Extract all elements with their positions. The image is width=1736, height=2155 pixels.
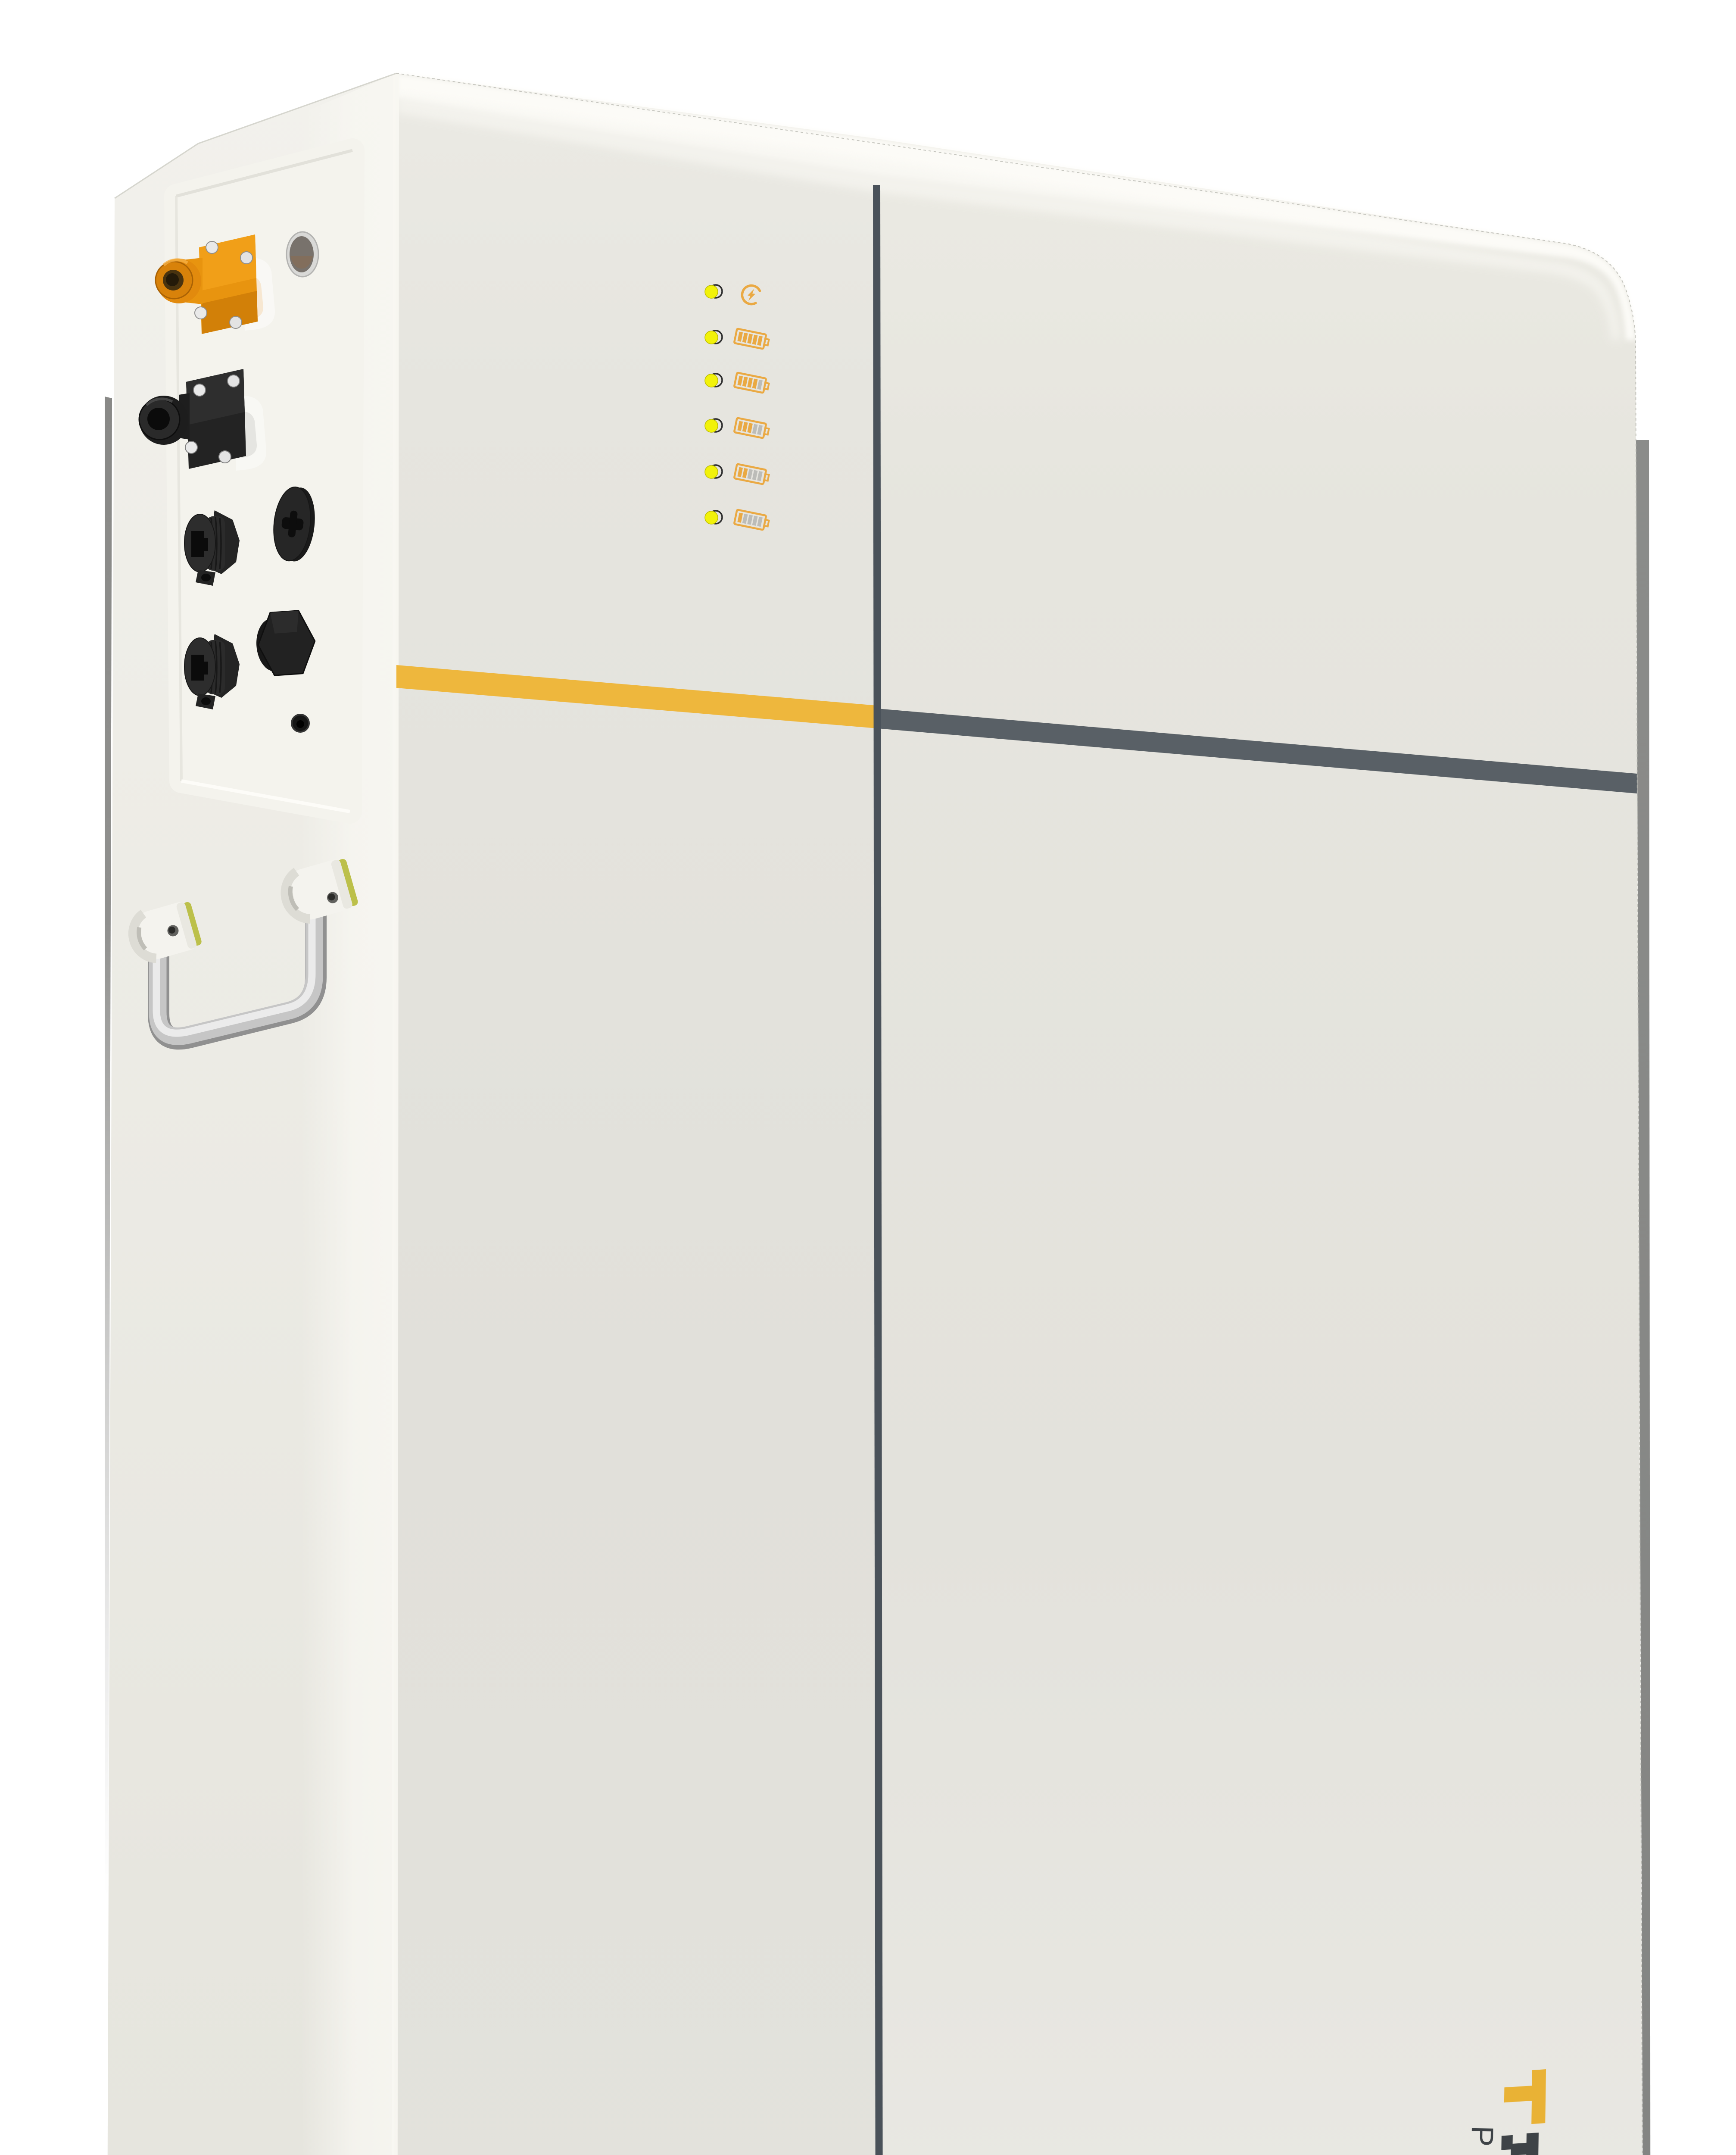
- svg-text:POWER: POWER: [1462, 2126, 1499, 2155]
